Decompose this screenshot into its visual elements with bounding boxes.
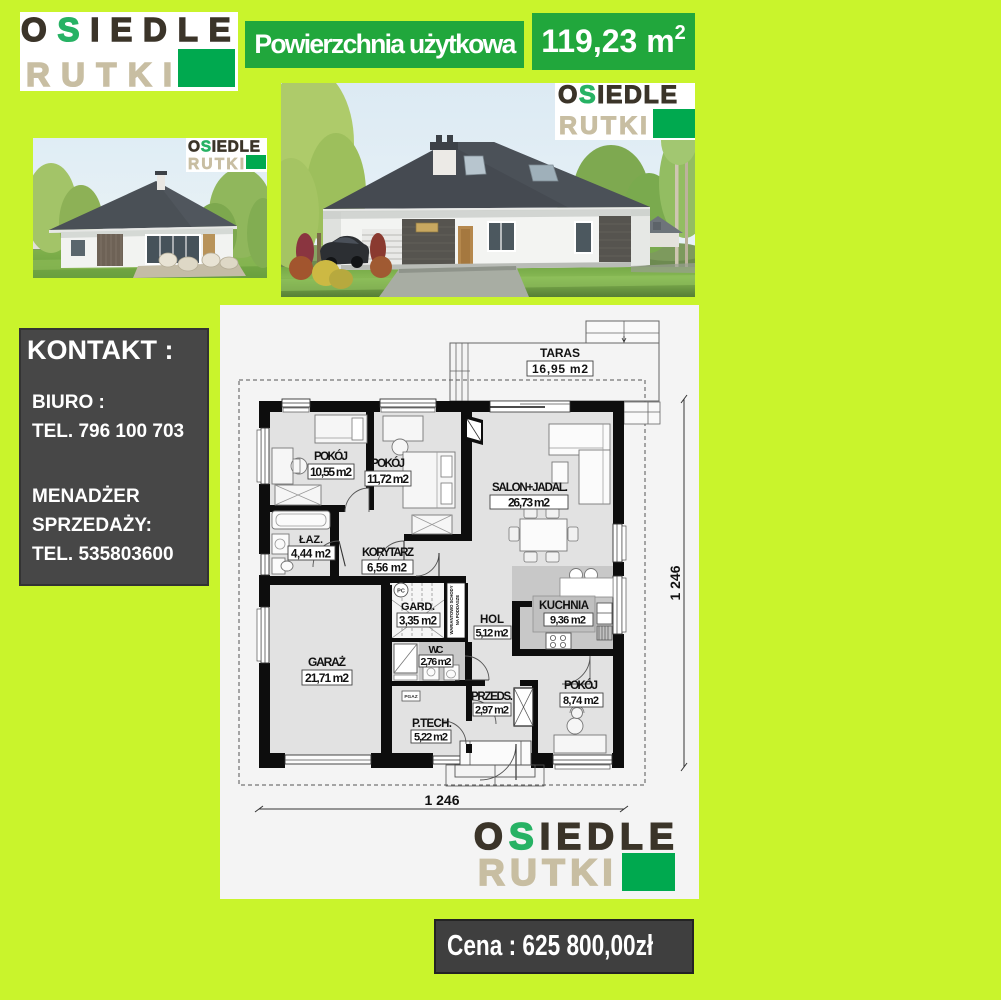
svg-text:9,36 m2: 9,36 m2 xyxy=(550,615,586,627)
svg-text:PC: PC xyxy=(397,589,405,595)
svg-text:POKÓJ: POKÓJ xyxy=(371,457,405,470)
svg-text:2,76 m2: 2,76 m2 xyxy=(421,656,452,668)
svg-text:5,12 m2: 5,12 m2 xyxy=(476,628,509,640)
svg-text:KORYTARZ: KORYTARZ xyxy=(362,547,414,559)
svg-text:PGAZ: PGAZ xyxy=(404,694,417,700)
svg-text:P.TECH.: P.TECH. xyxy=(412,718,452,730)
svg-text:WARIANTOWO SCHODY: WARIANTOWO SCHODY xyxy=(449,585,454,634)
svg-text:POKÓJ: POKÓJ xyxy=(314,450,348,463)
svg-text:2,97 m2: 2,97 m2 xyxy=(475,705,509,717)
svg-text:PRZEDS.: PRZEDS. xyxy=(471,691,513,703)
svg-text:GARD.: GARD. xyxy=(401,601,435,613)
svg-text:HOL: HOL xyxy=(480,614,504,626)
svg-text:RUTKI: RUTKI xyxy=(559,112,647,140)
svg-text:6,56 m2: 6,56 m2 xyxy=(367,563,407,575)
svg-text:1 246: 1 246 xyxy=(424,792,459,808)
svg-text:3,35 m2: 3,35 m2 xyxy=(399,616,437,628)
svg-text:GARAŻ: GARAŻ xyxy=(308,654,346,669)
svg-text:TARAS: TARAS xyxy=(540,346,580,360)
svg-text:21,71 m2: 21,71 m2 xyxy=(305,671,349,685)
svg-text:26,73 m2: 26,73 m2 xyxy=(508,496,550,510)
svg-text:11,72 m2: 11,72 m2 xyxy=(367,472,409,486)
svg-text:OSIEDLE: OSIEDLE xyxy=(188,139,260,156)
svg-text:5,22 m2: 5,22 m2 xyxy=(414,732,448,744)
svg-text:1 246: 1 246 xyxy=(667,565,683,600)
svg-text:4,44 m2: 4,44 m2 xyxy=(291,549,331,561)
svg-text:NA PODDASZE: NA PODDASZE xyxy=(455,595,460,626)
svg-text:ŁAZ.: ŁAZ. xyxy=(299,534,323,546)
svg-text:POKÓJ: POKÓJ xyxy=(564,679,598,692)
svg-text:WC: WC xyxy=(429,644,444,656)
svg-text:SALON+JADAL.: SALON+JADAL. xyxy=(492,482,568,494)
svg-text:KUCHNIA: KUCHNIA xyxy=(539,600,589,612)
svg-text:10,55 m2: 10,55 m2 xyxy=(310,465,352,479)
svg-text:16,95 m2: 16,95 m2 xyxy=(532,362,588,376)
svg-text:8,74 m2: 8,74 m2 xyxy=(563,695,599,707)
svg-text:RUTKI: RUTKI xyxy=(188,156,244,173)
